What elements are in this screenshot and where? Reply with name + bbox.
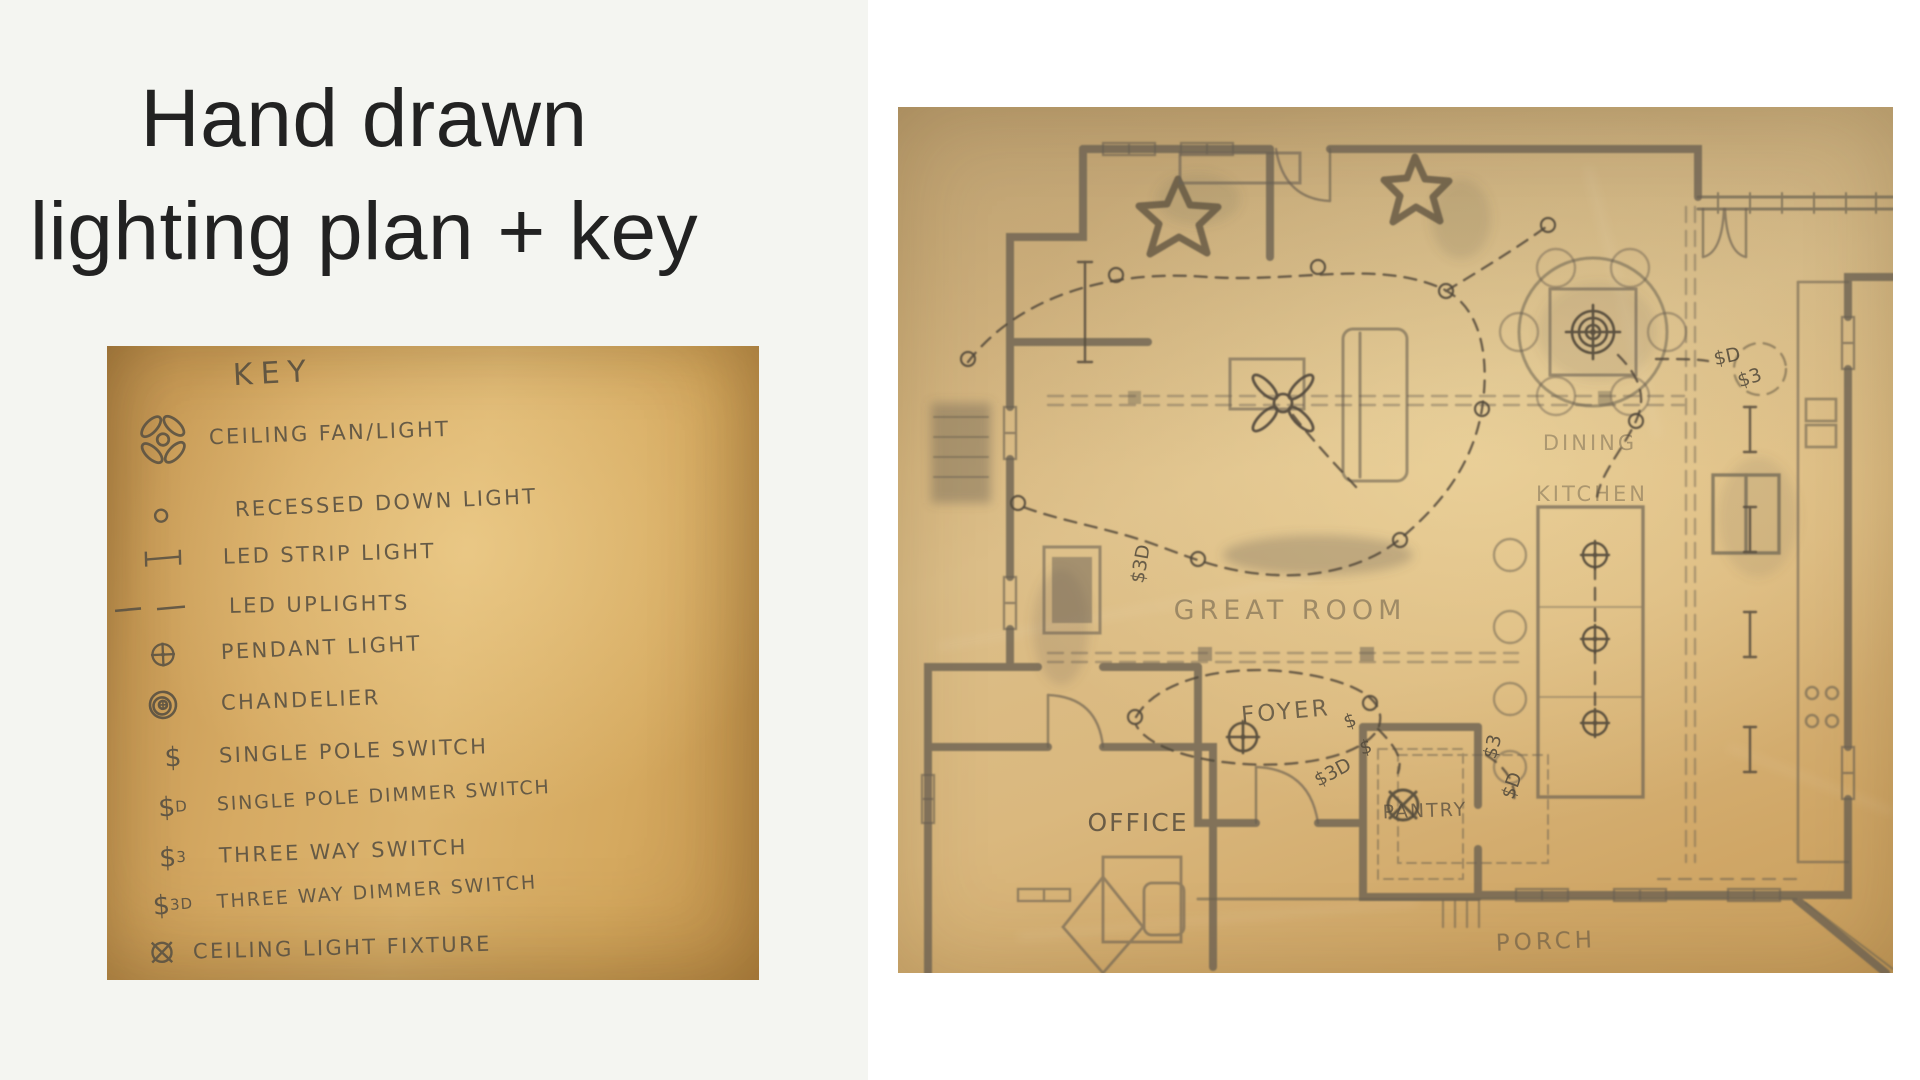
key-item-led-strip: LED STRIP LIGHT — [130, 527, 436, 583]
recessed-down-light-icon — [130, 488, 196, 537]
key-heading: KEY — [232, 354, 315, 393]
key-item-label: SINGLE POLE SWITCH — [219, 734, 489, 767]
floor-plan-drawing: DINING KITCHEN GREAT ROOM FOYER OFFICE P… — [898, 107, 1893, 973]
title-line-1: Hand drawn — [8, 62, 720, 175]
room-label-great-room: GREAT ROOM — [1174, 595, 1407, 626]
single-pole-dimmer-symbol: $D — [150, 790, 196, 823]
switch-annotation: $3D — [1126, 543, 1154, 585]
key-photo: KEY CEILING FAN/LIGHT RECESSED — [107, 346, 759, 980]
key-item-label: CEILING LIGHT FIXTURE — [193, 932, 492, 964]
key-item-ceiling-fan: CEILING FAN/LIGHT — [130, 405, 451, 464]
key-item-label: RECESSED DOWN LIGHT — [234, 484, 538, 521]
led-uplights-icon — [107, 583, 203, 631]
window-band-top-right — [1698, 193, 1893, 213]
key-item-label: LED STRIP LIGHT — [223, 539, 436, 569]
switch-annotation: $3 — [1479, 732, 1507, 761]
ceiling-fan-icon — [130, 409, 196, 469]
fireplace — [1052, 557, 1092, 623]
three-way-dimmer-symbol: $3D — [150, 888, 196, 922]
key-item-label: THREE WAY SWITCH — [219, 835, 469, 868]
switch-annotation: $D — [1497, 769, 1527, 802]
led-strip-light-icon — [130, 534, 195, 582]
kitchen-counters — [1798, 282, 1848, 862]
office-desk — [1063, 857, 1184, 973]
chandelier-icon — [130, 679, 196, 731]
switch-annotation: $ — [1341, 709, 1360, 734]
key-item-recessed: RECESSED DOWN LIGHT — [130, 472, 539, 538]
room-label-foyer: FOYER — [1240, 695, 1332, 729]
key-item-label: THREE WAY DIMMER SWITCH — [216, 871, 538, 913]
key-item-ceiling-fixture: CEILING LIGHT FIXTURE — [136, 920, 492, 977]
key-item-label: CHANDELIER — [221, 685, 381, 715]
key-item-label: SINGLE POLE DIMMER SWITCH — [216, 776, 551, 815]
room-label-pantry: PANTRY — [1382, 799, 1467, 824]
switch-annotations: $ $3D $ $3 $D $D $3 $3D — [1126, 343, 1764, 802]
switch-annotation: $3 — [1735, 364, 1765, 392]
room-label-dining: DINING — [1543, 431, 1637, 455]
room-labels: DINING KITCHEN GREAT ROOM FOYER OFFICE P… — [1087, 431, 1648, 957]
kitchen-island — [1538, 507, 1643, 797]
switch-annotation: $D — [1712, 343, 1743, 370]
floor-plan-photo: DINING KITCHEN GREAT ROOM FOYER OFFICE P… — [898, 107, 1893, 973]
page-title: Hand drawn lighting plan + key — [8, 62, 720, 288]
room-label-porch: PORCH — [1495, 927, 1596, 956]
ceiling-light-fixture-icon — [136, 929, 187, 976]
key-item-chandelier: CHANDELIER — [130, 673, 381, 730]
title-line-2: lighting plan + key — [8, 175, 720, 288]
room-label-office: OFFICE — [1087, 808, 1188, 837]
single-pole-switch-symbol: $ — [150, 741, 195, 774]
slide: Hand drawn lighting plan + key KEY CEILI… — [0, 0, 1920, 1080]
key-item-label: LED UPLIGHTS — [229, 591, 410, 618]
room-label-kitchen: KITCHEN — [1536, 482, 1648, 506]
key-item-label: CEILING FAN/LIGHT — [209, 417, 451, 449]
key-item-label: PENDANT LIGHT — [220, 631, 422, 664]
pendant-light-icon — [130, 630, 196, 679]
three-way-switch-symbol: $3 — [150, 841, 195, 874]
ceiling-fan-symbol — [1249, 371, 1316, 434]
